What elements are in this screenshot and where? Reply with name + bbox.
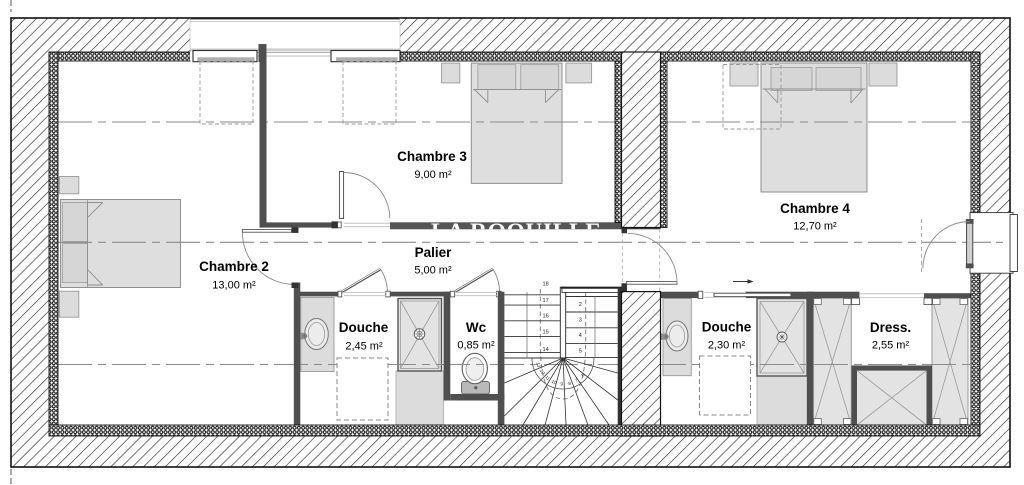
svg-text:Wc: Wc <box>466 320 487 335</box>
svg-text:0,85 m²: 0,85 m² <box>457 340 495 352</box>
svg-text:2,45 m²: 2,45 m² <box>345 341 383 353</box>
svg-text:2,30 m²: 2,30 m² <box>708 340 746 352</box>
svg-text:2,55 m²: 2,55 m² <box>872 340 910 352</box>
svg-text:3: 3 <box>579 318 582 324</box>
svg-text:9,00 m²: 9,00 m² <box>414 169 452 181</box>
svg-text:15: 15 <box>542 329 548 335</box>
svg-text:Douche: Douche <box>702 320 752 335</box>
svg-text:13,00 m²: 13,00 m² <box>212 280 256 292</box>
svg-text:17: 17 <box>542 298 548 304</box>
svg-text:5: 5 <box>579 349 582 355</box>
svg-text:Dress.: Dress. <box>870 320 911 335</box>
svg-text:14: 14 <box>542 347 548 353</box>
svg-text:Douche: Douche <box>339 320 389 335</box>
svg-text:Palier: Palier <box>415 245 453 260</box>
svg-text:18: 18 <box>542 281 548 287</box>
svg-text:4: 4 <box>579 333 582 339</box>
svg-text:5,00 m²: 5,00 m² <box>414 265 452 277</box>
svg-text:Chambre 2: Chambre 2 <box>199 259 269 274</box>
svg-text:16: 16 <box>542 314 548 320</box>
svg-text:Chambre 4: Chambre 4 <box>780 201 850 216</box>
svg-text:12,70 m²: 12,70 m² <box>793 221 837 233</box>
svg-text:Chambre 3: Chambre 3 <box>397 149 467 164</box>
svg-text:2: 2 <box>579 302 582 308</box>
